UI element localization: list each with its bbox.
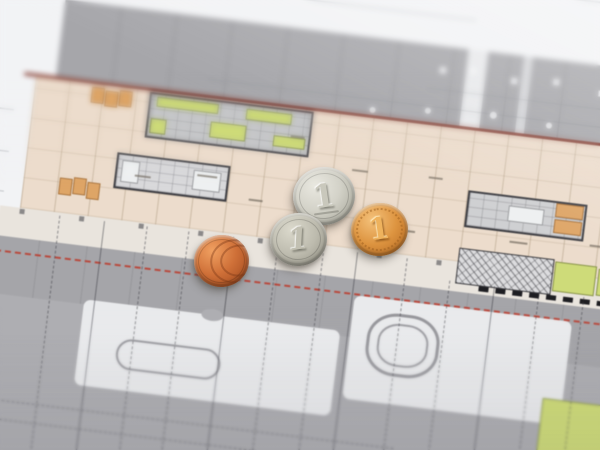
orange-fixture [90, 87, 105, 104]
ring-outline-inner [375, 321, 431, 370]
green-room [209, 121, 247, 141]
coin-face: 1 [267, 209, 331, 269]
coin-numeral: 1 [267, 209, 331, 269]
road-marking-square [553, 79, 560, 86]
road-marking-square [440, 67, 447, 74]
coin-silver-left: 1 [267, 209, 331, 269]
landscape-green [552, 261, 597, 296]
orange-fixture [72, 177, 87, 195]
orange-fixture [104, 90, 119, 107]
orange-fixture [58, 177, 73, 195]
core-room [507, 205, 545, 225]
photo-coins-on-blueprint: 1 1 1 [0, 0, 600, 450]
road-marking-square [511, 78, 518, 85]
green-room [156, 97, 219, 114]
coin-face: 1 [348, 199, 412, 259]
coin-numeral: 1 [348, 199, 412, 259]
margin-hline [0, 96, 14, 111]
core-room [192, 170, 222, 193]
green-room [149, 118, 167, 135]
margin-hline [0, 177, 4, 192]
orange-fixture [86, 182, 101, 200]
coin-copper-cent [191, 231, 253, 290]
coin-gold: 1 [348, 199, 412, 259]
road-marking-square [470, 68, 477, 75]
coin-numeral [191, 231, 253, 290]
core-room [120, 160, 141, 184]
margin-hline [0, 137, 9, 152]
green-room [245, 109, 292, 126]
coin-face [191, 231, 253, 290]
orange-fixture [118, 90, 133, 107]
